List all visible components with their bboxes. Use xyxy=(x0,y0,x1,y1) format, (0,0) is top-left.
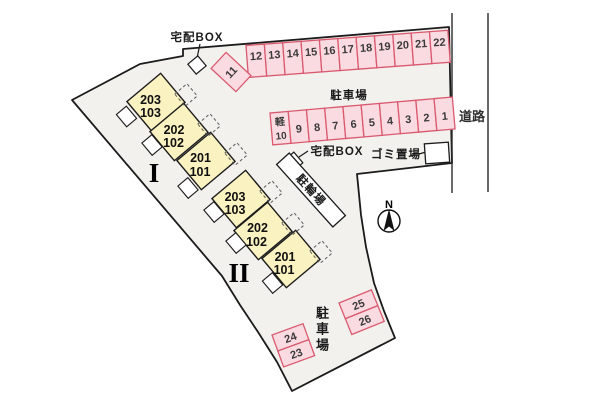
site-plan-svg: 道路 12 13 14 15 16 17 18 19 20 21 22 xyxy=(0,0,600,400)
b1-unit3-lower: 101 xyxy=(190,165,211,179)
building-2-name: II xyxy=(228,258,249,288)
parking-lot-top-label: 駐車場 xyxy=(330,88,368,102)
stall-10-label: 10 xyxy=(275,131,287,143)
stall-2-label: 2 xyxy=(423,112,430,124)
stall-3-label: 3 xyxy=(405,114,412,126)
stall-19-label: 19 xyxy=(378,41,391,54)
stall-13-label: 13 xyxy=(268,49,281,62)
stall-7-label: 7 xyxy=(332,120,339,132)
b1-unit2-lower: 102 xyxy=(163,136,184,150)
garbage-area-label: ゴミ置場 xyxy=(371,147,421,161)
stall-9-label: 9 xyxy=(295,123,302,135)
stall-6-label: 6 xyxy=(350,119,357,131)
stall-20-label: 20 xyxy=(396,39,409,52)
stall-17-label: 17 xyxy=(341,43,354,56)
delivery-box-mid-label: 宅配BOX xyxy=(311,144,364,158)
b2-unit1-upper: 203 xyxy=(225,190,246,204)
b2-unit2-lower: 102 xyxy=(246,235,267,249)
garbage-area-box xyxy=(424,142,449,164)
parking-lot-bottom-label: 駐車場 xyxy=(315,306,328,354)
stall-1-label: 1 xyxy=(441,111,448,123)
stall-8-label: 8 xyxy=(314,122,321,134)
stall-5-label: 5 xyxy=(368,117,375,129)
b2-unit3-lower: 101 xyxy=(274,263,295,277)
b1-unit3-upper: 201 xyxy=(190,151,211,165)
b2-unit1-lower: 103 xyxy=(225,203,246,217)
north-needle-icon xyxy=(384,209,395,231)
b2-unit2-upper: 202 xyxy=(247,221,268,235)
b2-unit3-upper: 201 xyxy=(275,250,296,264)
delivery-box-top-label: 宅配BOX xyxy=(171,30,224,44)
stall-22-label: 22 xyxy=(433,37,446,50)
stall-18-label: 18 xyxy=(360,42,373,55)
site-plan: 道路 12 13 14 15 16 17 18 19 20 21 22 xyxy=(0,0,600,400)
b1-unit1-upper: 203 xyxy=(140,93,161,107)
road-label: 道路 xyxy=(459,109,486,124)
b1-unit1-lower: 103 xyxy=(140,106,161,120)
stall-21-label: 21 xyxy=(415,38,428,51)
stall-12-label: 12 xyxy=(250,50,263,63)
stall-14-label: 14 xyxy=(286,48,300,61)
stall-16-label: 16 xyxy=(323,45,336,58)
stall-15-label: 15 xyxy=(305,46,318,59)
b1-unit2-upper: 202 xyxy=(164,123,185,137)
building-1-name: I xyxy=(149,158,160,188)
